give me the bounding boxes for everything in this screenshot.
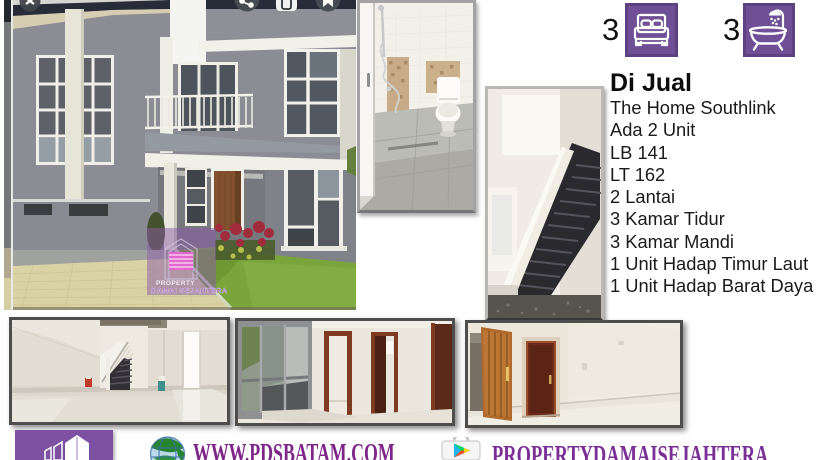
svg-text:DAMAI SEJAHTERA: DAMAI SEJAHTERA	[151, 286, 228, 295]
